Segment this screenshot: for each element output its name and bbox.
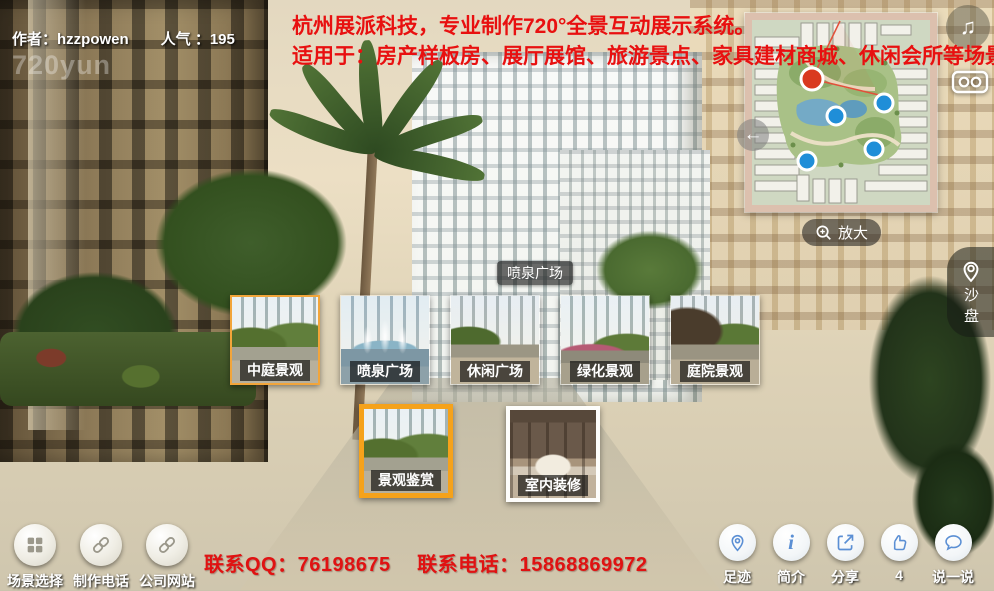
promo-banner-line1: 杭州展派科技，专业制作720°全景互动展示系统。 (292, 12, 994, 42)
author-label: 作者：hzzpowen (12, 28, 129, 49)
share-button[interactable] (827, 524, 864, 561)
grid-icon (24, 534, 46, 556)
promo-banner: 杭州展派科技，专业制作720°全景互动展示系统。 适用于：房产样板房、展厅展馆、… (292, 12, 994, 72)
map-pin-icon (958, 255, 984, 283)
scene-marker[interactable] (798, 152, 816, 170)
thumbnail-label: 绿化景观 (570, 361, 640, 382)
website-link-button[interactable] (146, 524, 188, 566)
scene-marker[interactable] (865, 140, 883, 158)
tool-share: 分享 (818, 524, 872, 587)
contact-info: 联系QQ：76198675 联系电话：15868869972 (204, 548, 648, 577)
link-icon (90, 534, 112, 556)
thumbnail-label: 中庭景观 (240, 360, 310, 381)
hotspot-fountain-plaza[interactable]: 喷泉广场 (497, 261, 573, 285)
sandbox-label: 沙盘 (960, 287, 981, 329)
promo-banner-line2: 适用于：房产样板房、展厅展馆、旅游景点、家具建材商城、休闲会所等场景宣传展示 (292, 42, 994, 72)
thumbnail-label: 景观鉴赏 (371, 470, 441, 491)
tool-label: 分享 (831, 567, 859, 587)
thumbnail-label: 喷泉广场 (350, 361, 420, 382)
bottom-right-toolbar: 足迹 i 简介 分享 4 说一说 (710, 524, 980, 587)
tool-scene-select: 场景选择 (4, 524, 66, 591)
scene-marker[interactable] (827, 107, 845, 125)
tool-label: 简介 (777, 567, 805, 587)
palm-tree (265, 50, 485, 240)
tool-label: 足迹 (723, 567, 751, 587)
info-icon: i (788, 532, 794, 553)
thumbnail-label: 休闲广场 (460, 361, 530, 382)
link-icon (156, 534, 178, 556)
thumbnail-label: 室内装修 (518, 475, 588, 496)
popularity-label: 人气 ：195 (161, 28, 235, 49)
thumbnail-jingguan[interactable]: 景观鉴赏 (359, 404, 453, 498)
like-button[interactable] (881, 524, 918, 561)
sandbox-tab[interactable]: 沙盘 (947, 247, 994, 337)
bottom-left-toolbar: 场景选择 制作电话 公司网站 (4, 524, 198, 591)
thumbnail-lvhua[interactable]: 绿化景观 (560, 295, 650, 385)
speech-icon (943, 532, 964, 553)
tool-label: 制作电话 (73, 571, 129, 591)
thumbnail-shinei[interactable]: 室内装修 (506, 406, 600, 502)
pin-icon (727, 532, 748, 553)
tool-like: 4 (872, 524, 926, 587)
thumbnail-tingyuan[interactable]: 庭院景观 (670, 295, 760, 385)
footprints-button[interactable] (719, 524, 756, 561)
phone-link-button[interactable] (80, 524, 122, 566)
tool-label: 4 (895, 567, 903, 583)
tool-intro: i 简介 (764, 524, 818, 587)
tool-website: 公司网站 (136, 524, 198, 591)
tool-phone: 制作电话 (70, 524, 132, 591)
thumbnail-penquan[interactable]: 喷泉广场 (340, 295, 430, 385)
thumbnail-xiuxian[interactable]: 休闲广场 (450, 295, 540, 385)
scene-select-button[interactable] (14, 524, 56, 566)
thumbnail-label: 庭院景观 (680, 361, 750, 382)
thumbnail-zhongting[interactable]: 中庭景观 (230, 295, 320, 385)
magnifier-plus-icon (815, 224, 832, 241)
tool-footprints: 足迹 (710, 524, 764, 587)
tool-comment: 说一说 (926, 524, 980, 587)
intro-button[interactable]: i (773, 524, 810, 561)
comment-button[interactable] (935, 524, 972, 561)
720yun-watermark: 720yun (12, 50, 111, 81)
thumbs-up-icon (889, 532, 910, 553)
scene-marker[interactable] (875, 94, 893, 112)
pan-left-arrow[interactable]: ← (737, 119, 769, 151)
share-icon (835, 532, 856, 553)
tool-label: 公司网站 (139, 571, 195, 591)
author-row: 作者：hzzpowen 人气 ：195 (12, 28, 235, 49)
tool-label: 场景选择 (7, 571, 63, 591)
tool-label: 说一说 (932, 567, 974, 587)
map-zoom-label: 放大 (838, 222, 868, 243)
map-zoom-button[interactable]: 放大 (802, 219, 881, 246)
